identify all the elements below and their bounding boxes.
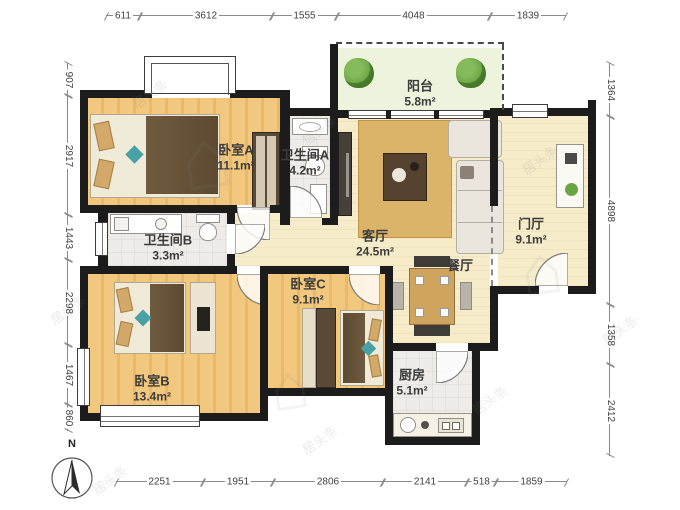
entry-console [556, 144, 584, 208]
dimension-segment: 2412 [609, 365, 610, 456]
table-tray [392, 168, 406, 182]
wardrobe-door [267, 136, 276, 208]
dimension-segment: 1443 [67, 215, 68, 260]
entry-window [512, 104, 548, 118]
dimension-segment: 3612 [140, 15, 272, 16]
wall [196, 413, 268, 421]
wall [490, 286, 539, 294]
coffee-table [383, 153, 427, 201]
dimension-segment: 611 [106, 15, 140, 16]
dimension-segment: 1467 [67, 345, 68, 405]
dimension-segment: 860 [67, 405, 68, 431]
console-decor [565, 153, 577, 164]
bedroom-b-bed [114, 282, 216, 356]
dimension-segment: 4898 [609, 117, 610, 305]
label-dining: 餐厅 [447, 258, 473, 274]
wall [227, 205, 235, 224]
label-bathroom-b: 卫生间B3.3m² [144, 232, 192, 263]
bay-window-bedroom-a [144, 56, 236, 94]
balcony-sliding-door [348, 110, 484, 119]
plant-icon [344, 58, 374, 88]
watermark-text: 居头条 [298, 421, 341, 459]
window-frame [151, 63, 229, 95]
dimension-segment: 1555 [272, 15, 337, 16]
wall [330, 44, 338, 225]
bedroom-c-furniture [302, 308, 384, 388]
dimension-segment: 2298 [67, 260, 68, 345]
kitchen-sink [400, 417, 416, 433]
dimension-segment: 2141 [383, 481, 467, 482]
toilet-bowl [199, 223, 217, 241]
toilet-tank [196, 214, 220, 223]
dimension-segment: 2917 [67, 96, 68, 215]
pillow [368, 318, 382, 341]
wall [385, 437, 480, 445]
bedroom-b-side-window [77, 348, 90, 406]
place-setting [440, 276, 449, 285]
bathroom-b-window [95, 222, 108, 256]
balcony-dashed-edge [336, 42, 504, 44]
bedroom-c-wardrobe [316, 308, 336, 388]
compass-icon [50, 454, 94, 502]
balcony-dashed-edge [502, 44, 504, 110]
sliding-door-mullion [386, 110, 391, 119]
watermark-text: 居头条 [88, 461, 131, 499]
label-entry: 门厅9.1m² [515, 216, 546, 247]
wall [385, 266, 393, 445]
tv-screen [197, 307, 210, 331]
wall [80, 90, 88, 213]
wall [260, 388, 393, 396]
wall [546, 108, 596, 116]
sofa-cushion-line [458, 222, 502, 223]
place-setting [415, 308, 424, 317]
north-compass: N [50, 438, 94, 504]
bathroom-b-counter [110, 214, 182, 234]
label-living: 客厅24.5m² [356, 228, 394, 259]
kitchen-counter [393, 413, 472, 437]
washing-machine [114, 217, 129, 231]
dimension-segment: 907 [67, 63, 68, 96]
bed-frame [340, 310, 384, 386]
place-setting [415, 276, 424, 285]
dining-bench [414, 325, 450, 336]
door-bedroom-c [349, 274, 380, 305]
wall [490, 294, 498, 351]
wall [80, 205, 237, 213]
bedroom-b-tv-stand [190, 282, 216, 354]
door-kitchen [436, 351, 468, 383]
tv-screen [346, 153, 349, 197]
bathroom-a-sink [292, 118, 328, 135]
wall [260, 266, 268, 421]
wall [80, 266, 237, 274]
sink-basin [155, 218, 167, 230]
wall [490, 108, 498, 206]
dimension-segment: 1364 [609, 63, 610, 117]
dimension-segment: 518 [467, 481, 496, 482]
label-kitchen: 厨房5.1m² [396, 367, 427, 398]
dimension-segment: 2251 [116, 481, 203, 482]
dining-bench [414, 256, 450, 267]
door-bathroom-a [290, 186, 322, 218]
kitchen-stove [438, 418, 464, 433]
wall [322, 218, 338, 225]
kitchen-knob [421, 421, 429, 429]
wardrobe-door [256, 136, 265, 208]
console-plant [565, 183, 578, 196]
label-bedroom-c: 卧室C9.1m² [290, 276, 325, 307]
tv-cabinet [338, 132, 352, 216]
compass-n-label: N [68, 438, 76, 450]
sofa-pillow [460, 166, 474, 179]
pillow [368, 354, 382, 377]
wall [280, 218, 290, 225]
dimension-segment: 1859 [496, 481, 567, 482]
wall [80, 90, 152, 98]
table-decor [410, 162, 419, 171]
sliding-door-mullion [434, 110, 439, 119]
wall [385, 343, 436, 351]
door-entry [535, 253, 568, 286]
label-bedroom-b: 卧室B13.4m² [133, 373, 171, 404]
wall [227, 254, 235, 266]
living-rug [358, 120, 452, 238]
dining-chair [392, 282, 404, 310]
wall [268, 266, 349, 274]
bedroom-b-bay-window [100, 405, 200, 427]
dining-table [409, 268, 455, 325]
wall [472, 343, 480, 445]
wardrobe-door [302, 308, 316, 388]
place-setting [440, 308, 449, 317]
sink-basin [299, 122, 321, 132]
bedroom-a-wardrobe [252, 132, 280, 210]
plant-icon [456, 58, 486, 88]
label-bathroom-a: 卫生间A4.2m² [281, 147, 329, 178]
bed-blanket [150, 284, 184, 352]
bathroom-b-toilet [196, 214, 220, 242]
bedroom-a-bed [90, 114, 220, 198]
label-bedroom-a: 卧室A11.1m² [217, 142, 254, 173]
dimension-segment: 1839 [490, 15, 566, 16]
wall [230, 90, 290, 98]
dining-chair [460, 282, 472, 310]
burner [442, 422, 450, 430]
label-balcony: 阳台5.8m² [404, 78, 435, 109]
entry-opening-dashed [491, 206, 493, 286]
dimension-segment: 4048 [337, 15, 490, 16]
burner [452, 422, 460, 430]
floor-plan-canvas: 卧室A11.1m² 卫生间A4.2m² 阳台5.8m² 客厅24.5m² 门厅9… [0, 0, 680, 510]
dimension-segment: 1358 [609, 305, 610, 365]
dimension-segment: 2806 [273, 481, 383, 482]
dimension-segment: 1951 [203, 481, 273, 482]
bed-blanket [146, 116, 218, 194]
wall [588, 100, 596, 294]
door-bathroom-b [235, 224, 265, 254]
